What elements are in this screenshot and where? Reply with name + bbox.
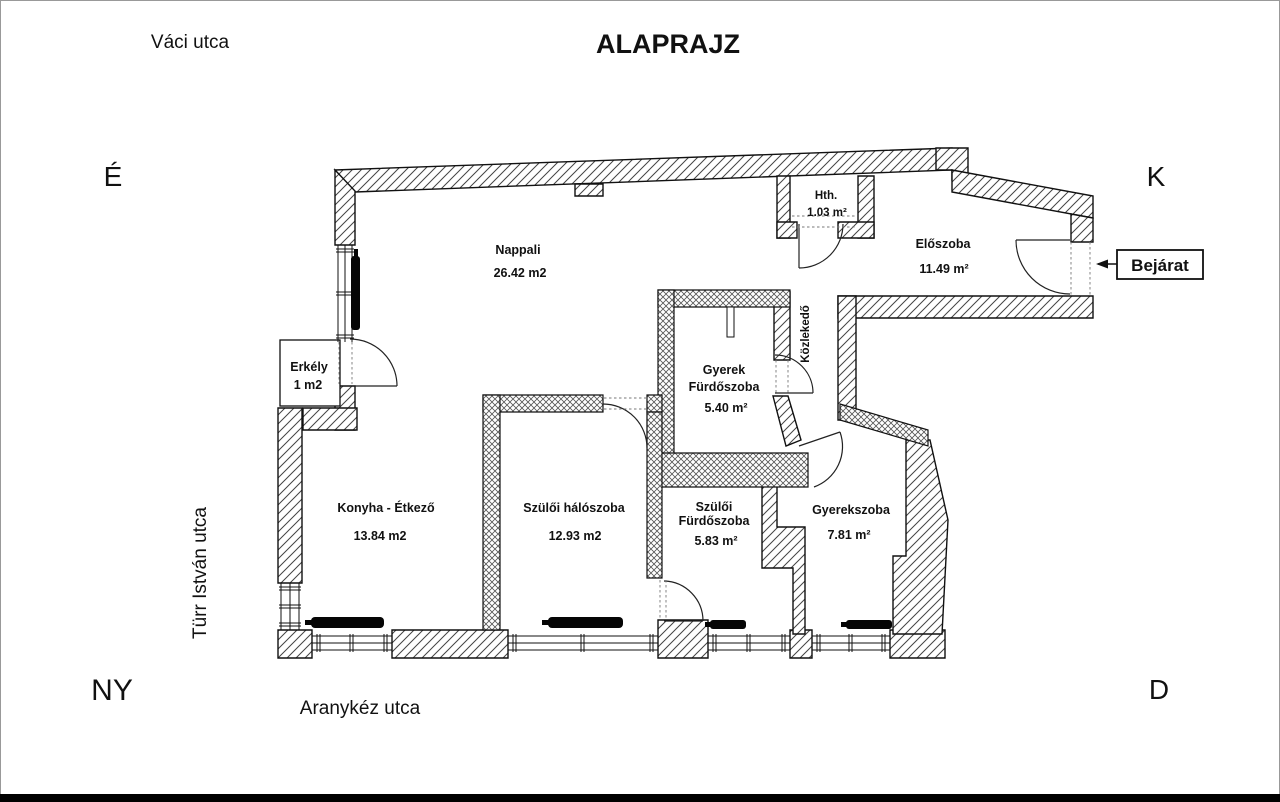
- room-area-erkely: 1 m2: [294, 378, 323, 392]
- room-label-gyfs-1: Gyerek: [703, 363, 745, 377]
- room-label-haloszoba: Szülői hálószoba: [523, 501, 625, 515]
- haloszoba-fs-wall: [647, 412, 662, 578]
- compass-south: D: [1149, 674, 1169, 705]
- room-label-hth: Hth.: [815, 190, 837, 202]
- haloszoba-radiator: [542, 617, 623, 628]
- corridor-right-wall: [838, 296, 856, 420]
- room-area-nappali: 26.42 m2: [494, 266, 547, 280]
- eloszoba-bottom-wall: [838, 296, 1093, 318]
- floorplan-page: Bejárat ALAPRAJZ Váci utca Aranykéz utca…: [0, 0, 1280, 802]
- compass-east: K: [1147, 161, 1166, 192]
- room-label-eloszoba: Előszoba: [916, 237, 972, 251]
- gyerekszoba-radiator: [841, 620, 892, 629]
- room-label-erkely: Erkély: [290, 360, 328, 374]
- room-area-haloszoba: 12.93 m2: [549, 529, 602, 543]
- gyfs-fs-wall: [656, 453, 808, 487]
- left-wall-lower: [278, 408, 302, 583]
- room-label-szfs-1: Szülői: [696, 500, 733, 514]
- room-label-kozlekedo: Közlekedő: [800, 305, 812, 363]
- left-wall-jog: [303, 408, 357, 430]
- room-label-konyha: Konyha - Étkező: [337, 500, 435, 515]
- bottom-pier-3: [658, 620, 708, 658]
- compass-north: É: [104, 161, 123, 192]
- right-wall: [1071, 214, 1093, 242]
- nappali-radiator: [351, 249, 360, 330]
- street-top: Váci utca: [151, 32, 230, 53]
- room-label-gyerekszoba: Gyerekszoba: [812, 503, 891, 517]
- room-label-nappali: Nappali: [495, 243, 540, 257]
- room-area-eloszoba: 11.49 m²: [919, 262, 968, 276]
- street-bottom: Aranykéz utca: [300, 698, 421, 719]
- haloszoba-top-wall-right: [647, 395, 662, 412]
- entrance-label: Bejárat: [1131, 256, 1189, 275]
- bottom-pier-1: [278, 630, 312, 658]
- room-area-hth: 1.03 m²: [807, 207, 847, 219]
- room-area-gyerekszoba: 7.81 m²: [827, 528, 870, 542]
- page-border: [0, 1, 1280, 802]
- room-area-gyfs: 5.40 m²: [704, 401, 747, 415]
- room-area-szfs: 5.83 m²: [694, 534, 737, 548]
- floorplan-canvas: Bejárat ALAPRAJZ Váci utca Aranykéz utca…: [0, 0, 1280, 802]
- gyfs-top-wall: [658, 290, 790, 307]
- room-label-szfs-2: Fürdőszoba: [679, 514, 751, 528]
- haloszoba-top-wall: [483, 395, 603, 412]
- shower-partition: [727, 307, 734, 337]
- konyha-haloszoba-wall: [483, 395, 500, 630]
- top-wall-pilaster: [575, 184, 603, 196]
- page-title: ALAPRAJZ: [596, 29, 740, 59]
- bottom-pier-2: [392, 630, 508, 658]
- fs-radiator: [705, 620, 746, 629]
- street-left: Türr István utca: [190, 507, 211, 639]
- compass-west: NY: [91, 674, 133, 707]
- room-label-gyfs-2: Fürdőszoba: [689, 380, 761, 394]
- konyha-radiator: [305, 617, 384, 628]
- hth-bottom-left: [777, 222, 797, 238]
- room-area-konyha: 13.84 m2: [354, 529, 407, 543]
